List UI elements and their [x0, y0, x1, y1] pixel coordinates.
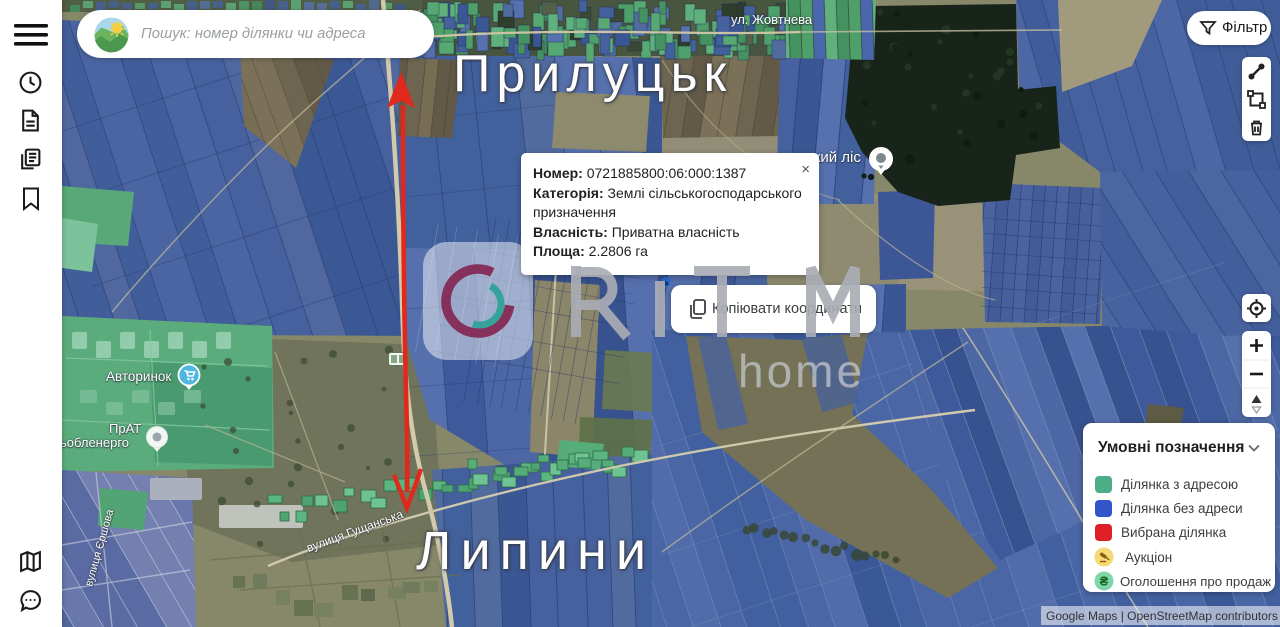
svg-text:₴: ₴	[1100, 574, 1109, 589]
